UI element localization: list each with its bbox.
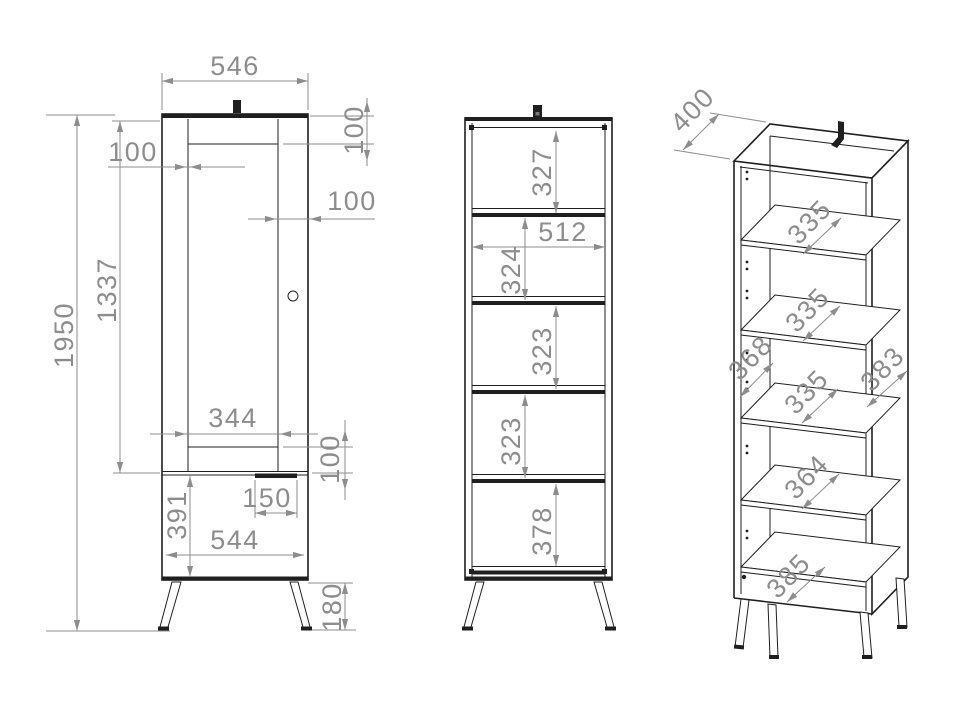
dim-leg-height: 180 <box>317 582 347 632</box>
dim-space-3: 323 <box>527 326 557 376</box>
technical-drawing: 546 100 100 100 1337 <box>0 0 963 723</box>
dim-top-width: 546 <box>210 51 260 81</box>
left-leg <box>464 582 484 627</box>
shelf <box>472 479 605 483</box>
dim-space-2: 324 <box>496 245 526 295</box>
dim-panel-width: 344 <box>208 403 258 433</box>
legs <box>462 582 616 631</box>
left-leg <box>160 582 181 627</box>
dimensions-front-open: 327 512 324 323 323 378 <box>472 131 605 566</box>
front-left-leg <box>735 599 749 648</box>
base-edge <box>465 577 612 581</box>
dim-bottom-space: 378 <box>527 506 557 556</box>
view-isometric: 400 335 335 335 364 385 368 383 <box>665 82 911 659</box>
dim-inner-width: 512 <box>538 217 588 247</box>
right-leg <box>594 582 614 627</box>
door-knob <box>288 291 298 301</box>
dim-bottom-rail: 100 <box>315 434 345 484</box>
top-panel <box>162 114 308 119</box>
back-left-leg <box>768 604 778 657</box>
shelf <box>472 390 605 394</box>
dim-total-height: 1950 <box>49 302 79 368</box>
dim-right-stile: 100 <box>327 186 377 216</box>
view-front-open: 327 512 324 323 323 378 <box>462 105 616 631</box>
shelf <box>472 301 605 305</box>
drawing-page: 546 100 100 100 1337 <box>0 0 963 723</box>
bottom-shelf <box>472 571 605 575</box>
dim-top-rail: 100 <box>339 105 369 155</box>
legs <box>158 582 312 631</box>
dimensions-front-door: 546 100 100 100 1337 <box>46 51 377 632</box>
wall-bracket-icon <box>533 105 542 118</box>
dim-top-space: 327 <box>527 147 557 197</box>
view-front-door: 546 100 100 100 1337 <box>46 51 377 632</box>
right-leg <box>290 582 310 627</box>
wall-bracket-icon <box>233 100 241 113</box>
dim-depth: 400 <box>665 82 721 138</box>
bottom-panel <box>162 577 308 581</box>
dim-space-4: 323 <box>496 416 526 466</box>
finger-groove <box>255 474 297 479</box>
dim-door-height: 1337 <box>92 257 122 323</box>
dim-groove-width: 150 <box>242 483 292 513</box>
front-right-leg <box>860 612 872 658</box>
dim-left-stile: 100 <box>108 137 158 167</box>
dim-base-height: 391 <box>162 490 192 540</box>
back-right-leg <box>896 578 907 627</box>
dim-base-width: 544 <box>210 525 260 555</box>
